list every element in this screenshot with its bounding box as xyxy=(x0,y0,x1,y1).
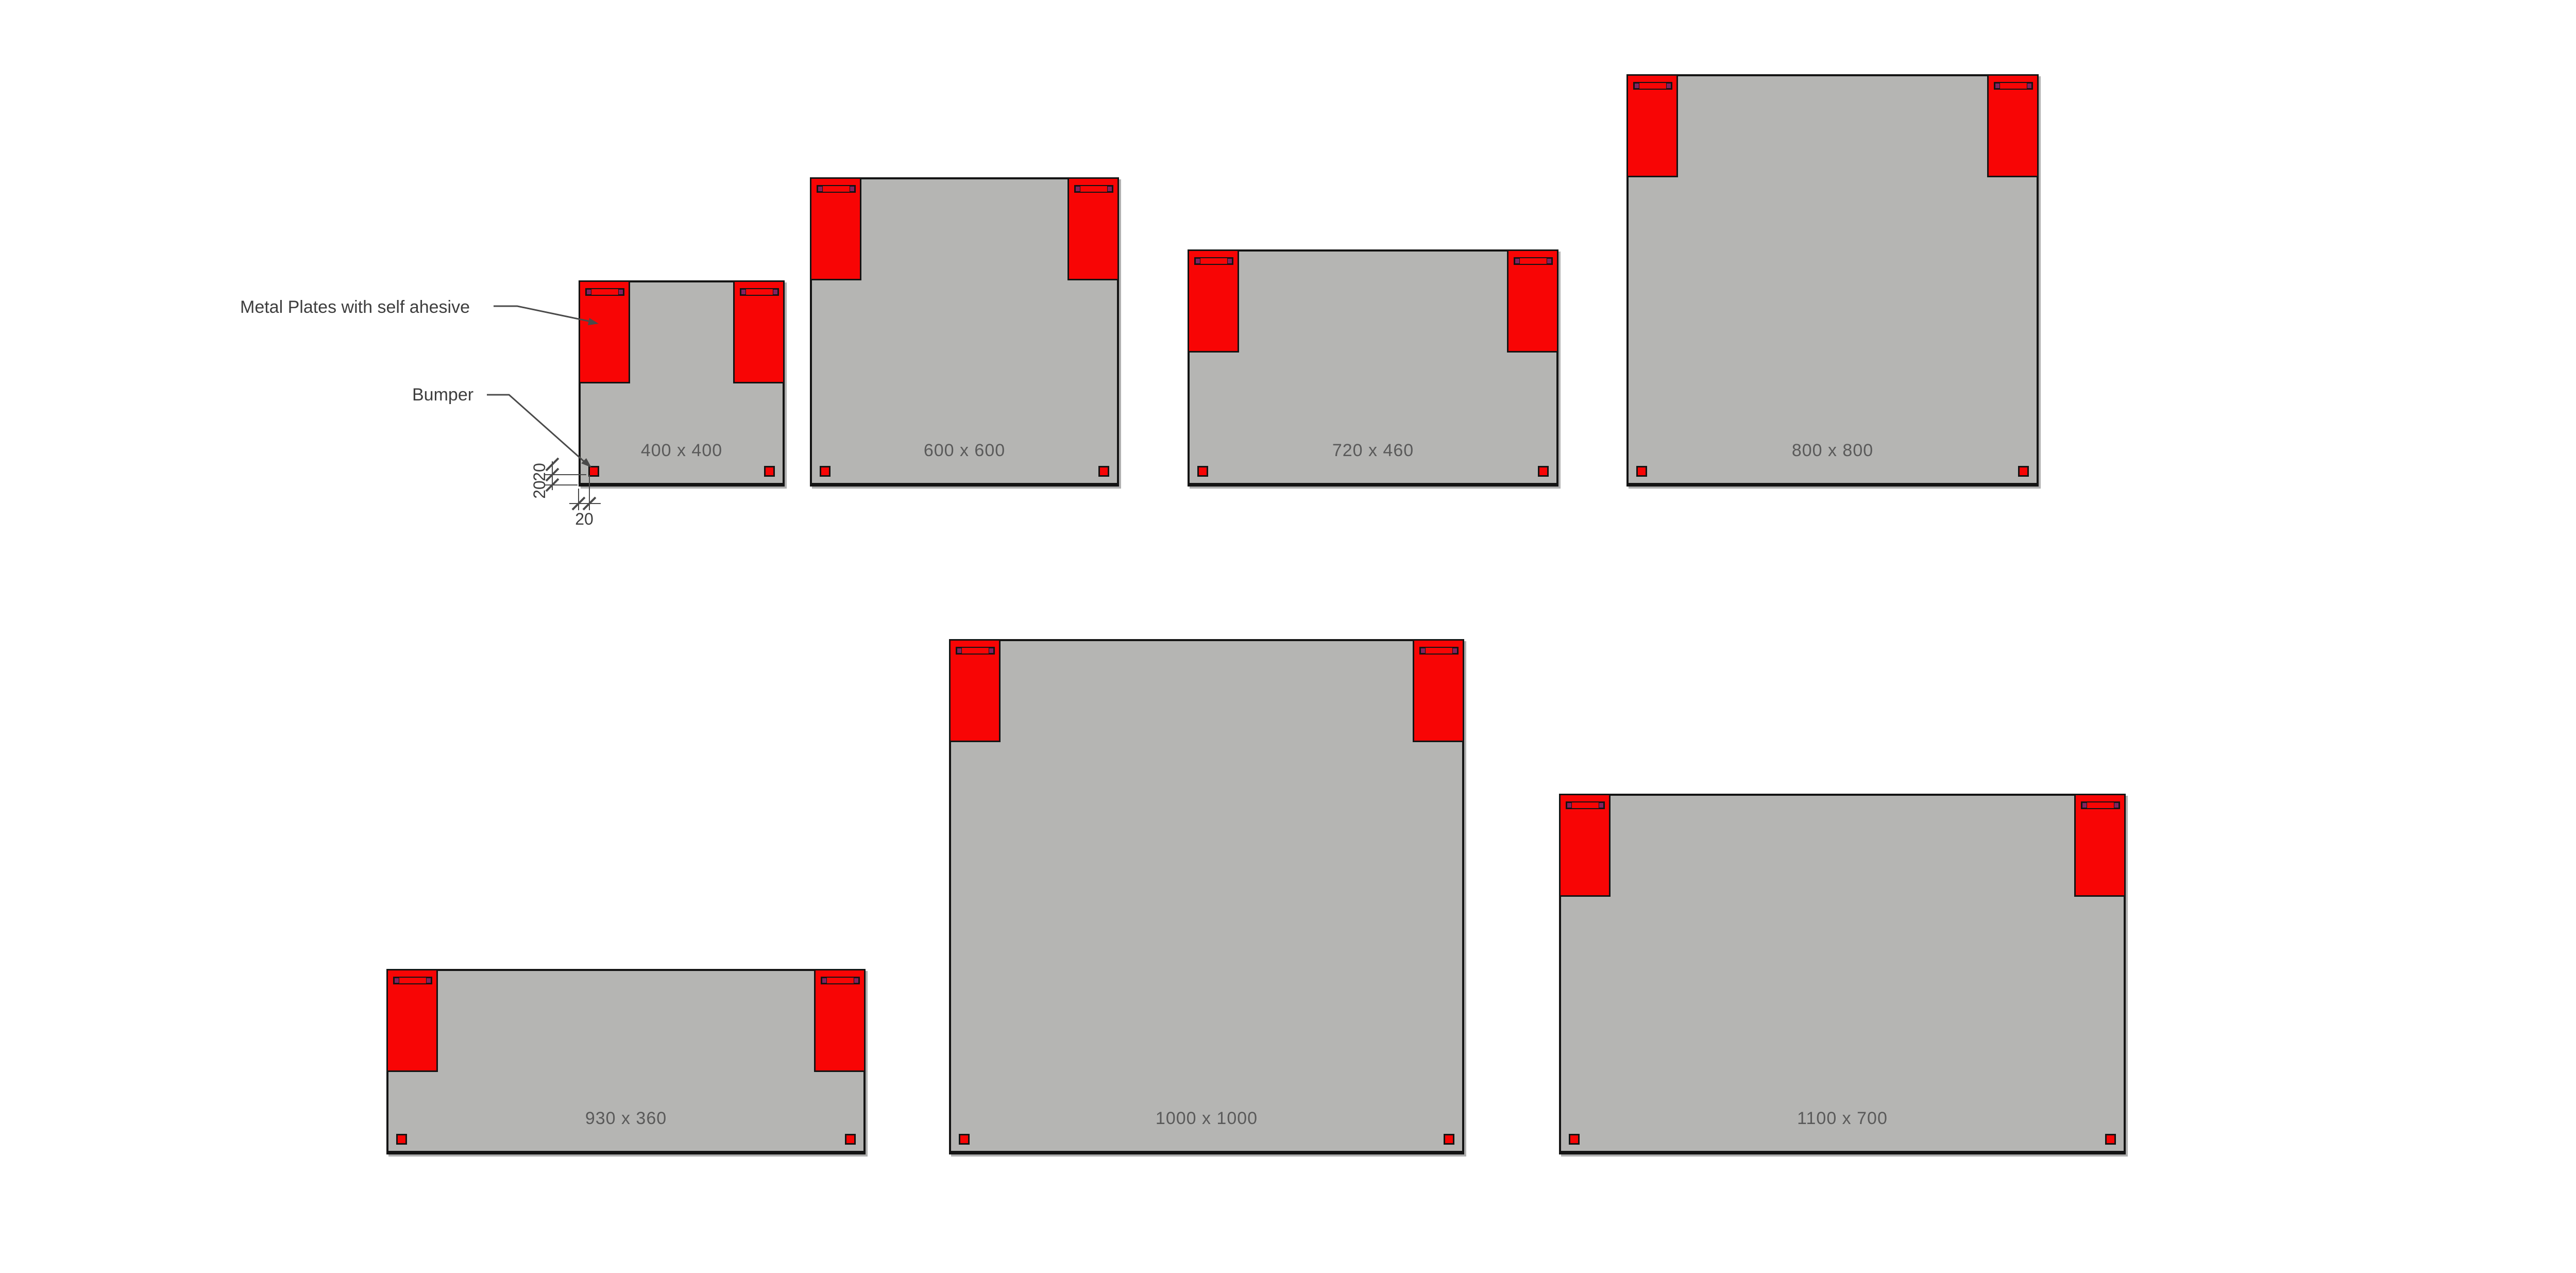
metal-plate xyxy=(814,969,866,1072)
plate-slot xyxy=(1514,257,1553,265)
plate-slot xyxy=(821,977,860,984)
panel-size-label: 400 x 400 xyxy=(581,440,783,461)
bumper xyxy=(959,1134,970,1145)
slot-end-cap xyxy=(1995,83,2000,89)
bumper xyxy=(1569,1134,1580,1145)
slot-end-cap xyxy=(618,289,623,295)
slot-end-cap xyxy=(989,648,994,654)
panel-size-label: 930 x 360 xyxy=(388,1108,863,1129)
metal-plate xyxy=(1067,177,1119,280)
panel-size-label: 600 x 600 xyxy=(812,440,1117,461)
panel-800x800: 800 x 800 xyxy=(1626,74,2039,487)
metal-plate xyxy=(1987,74,2039,177)
bumper xyxy=(820,466,831,477)
plate-slot xyxy=(1074,185,1113,193)
slot-end-cap xyxy=(1452,648,1458,654)
bumper xyxy=(845,1134,856,1145)
panel-size-label: 720 x 460 xyxy=(1190,440,1556,461)
slot-end-cap xyxy=(957,648,962,654)
bumper xyxy=(1098,466,1109,477)
metal-plate xyxy=(733,280,785,383)
panel-930x360: 930 x 360 xyxy=(386,969,866,1154)
plate-slot xyxy=(956,647,995,655)
slot-end-cap xyxy=(822,978,827,983)
slot-end-cap xyxy=(1515,258,1520,264)
drawing-canvas: 400 x 400 600 x 600 xyxy=(0,0,2576,1273)
metal-plate xyxy=(1559,794,1611,897)
bumper xyxy=(2105,1134,2116,1145)
panel-400x400: 400 x 400 xyxy=(579,280,785,487)
dimension-tick xyxy=(572,497,585,510)
panel-600x600: 600 x 600 xyxy=(810,177,1119,487)
panel-720x460: 720 x 460 xyxy=(1188,249,1558,487)
slot-end-cap xyxy=(2027,83,2032,89)
bumper xyxy=(1636,466,1647,477)
dimension-tick xyxy=(546,458,558,471)
metal-plate xyxy=(1188,249,1239,353)
slot-end-cap xyxy=(1567,802,1572,808)
plate-slot xyxy=(2081,801,2120,809)
panel-size-label: 1100 x 700 xyxy=(1561,1108,2124,1129)
slot-end-cap xyxy=(1075,186,1080,192)
dimension-label-bumper-height: 20 xyxy=(530,463,549,481)
plate-slot xyxy=(1194,257,1233,265)
bumper-leader-line xyxy=(487,395,587,464)
plate-slot xyxy=(817,185,856,193)
panel-size-label: 1000 x 1000 xyxy=(951,1108,1462,1129)
bumper xyxy=(764,466,775,477)
slot-end-cap xyxy=(394,978,399,983)
plate-slot xyxy=(1994,82,2033,90)
slot-end-cap xyxy=(1227,258,1232,264)
dimension-tick xyxy=(546,468,558,481)
slot-end-cap xyxy=(1666,83,1671,89)
plate-slot xyxy=(1566,801,1605,809)
bumper xyxy=(1197,466,1208,477)
bumper xyxy=(1444,1134,1454,1145)
plate-slot xyxy=(1419,647,1459,655)
bumper xyxy=(1538,466,1549,477)
slot-end-cap xyxy=(1547,258,1552,264)
metal-plate xyxy=(1626,74,1678,177)
slot-end-cap xyxy=(1599,802,1604,808)
metal-plates-callout-label: Metal Plates with self ahesive xyxy=(240,297,470,317)
plate-slot xyxy=(740,288,779,296)
slot-end-cap xyxy=(818,186,823,192)
metal-plate xyxy=(579,280,630,383)
plate-slot xyxy=(1633,82,1672,90)
bumper xyxy=(2018,466,2029,477)
slot-end-cap xyxy=(586,289,591,295)
slot-end-cap xyxy=(773,289,778,295)
slot-end-cap xyxy=(2082,802,2087,808)
dimension-label-bumper-bottom-offset: 20 xyxy=(530,480,549,499)
slot-end-cap xyxy=(854,978,859,983)
panel-1000x1000: 1000 x 1000 xyxy=(949,639,1464,1154)
slot-end-cap xyxy=(1195,258,1200,264)
metal-plate xyxy=(949,639,1001,742)
bumper-callout-label: Bumper xyxy=(412,384,473,405)
metal-plate xyxy=(1413,639,1464,742)
plate-slot xyxy=(585,288,624,296)
slot-end-cap xyxy=(426,978,431,983)
metal-plate xyxy=(1507,249,1558,353)
slot-end-cap xyxy=(2114,802,2119,808)
dimension-tick xyxy=(583,497,596,510)
slot-end-cap xyxy=(850,186,855,192)
bumper xyxy=(396,1134,407,1145)
panel-1100x700: 1100 x 700 xyxy=(1559,794,2126,1154)
slot-end-cap xyxy=(741,289,746,295)
panel-size-label: 800 x 800 xyxy=(1629,440,2037,461)
slot-end-cap xyxy=(1420,648,1426,654)
slot-end-cap xyxy=(1634,83,1639,89)
plate-slot xyxy=(393,977,432,984)
slot-end-cap xyxy=(1107,186,1112,192)
metal-plate xyxy=(386,969,438,1072)
dimension-tick xyxy=(546,479,558,491)
metal-plate xyxy=(2074,794,2126,897)
bumper xyxy=(588,466,599,477)
dimension-label-bumper-left-offset: 20 xyxy=(575,510,594,528)
metal-plate xyxy=(810,177,861,280)
